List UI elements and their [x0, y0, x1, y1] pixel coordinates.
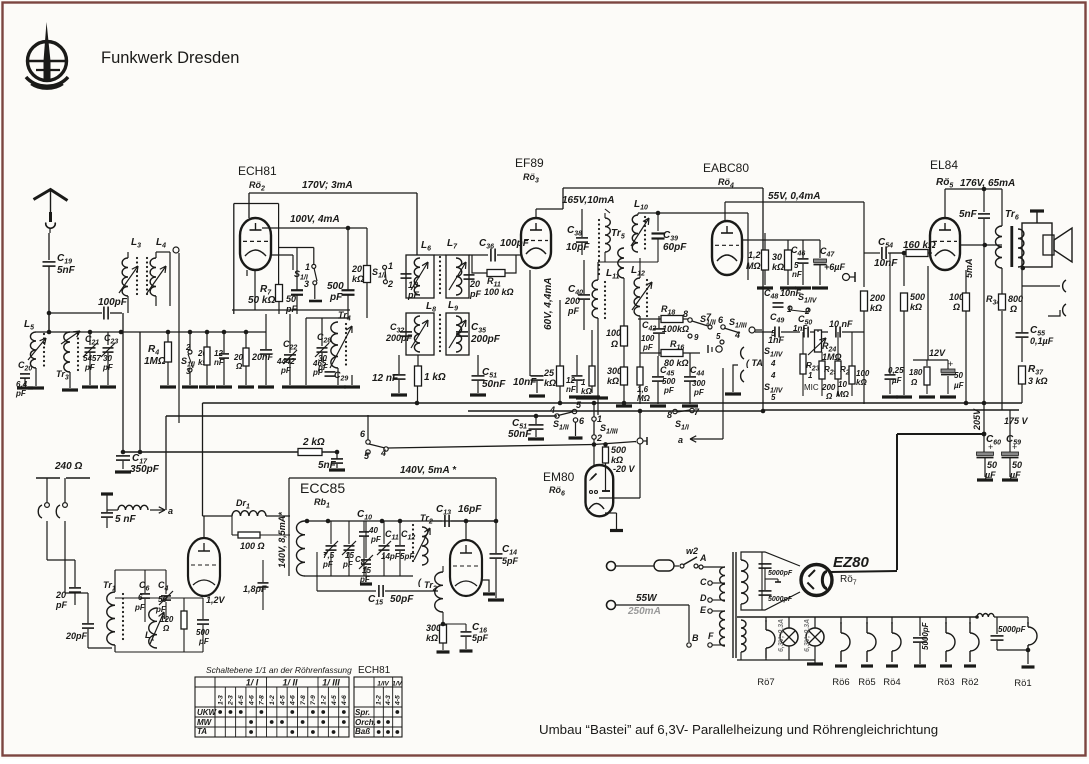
- svg-text:2: 2: [387, 279, 393, 289]
- svg-text:140V, 5mA *: 140V, 5mA *: [400, 465, 457, 476]
- svg-text:1/IV: 1/IV: [377, 681, 389, 688]
- svg-text:1 kΩ: 1 kΩ: [424, 372, 446, 383]
- svg-text:kΩ: kΩ: [426, 633, 438, 643]
- svg-text:7-8: 7-8: [259, 695, 266, 705]
- svg-text:-20 V: -20 V: [613, 464, 636, 474]
- svg-text:Orch.: Orch.: [355, 718, 376, 727]
- svg-text:7,5: 7,5: [323, 551, 335, 560]
- svg-text:300: 300: [607, 366, 622, 376]
- svg-text:10pF: 10pF: [566, 242, 590, 253]
- svg-text:100: 100: [949, 292, 964, 302]
- svg-text:25: 25: [543, 368, 555, 378]
- svg-text:pF: pF: [567, 306, 579, 316]
- svg-text:Rö6: Rö6: [832, 677, 849, 688]
- svg-text:7-8: 7-8: [300, 695, 307, 705]
- svg-text:UKW: UKW: [197, 708, 218, 717]
- svg-text:10 nF: 10 nF: [829, 319, 853, 329]
- svg-text:5000pF: 5000pF: [998, 625, 1027, 634]
- svg-text:EZ80: EZ80: [833, 554, 870, 571]
- svg-text:a: a: [168, 506, 173, 516]
- svg-text:EM80: EM80: [543, 470, 575, 484]
- svg-text:50 kΩ: 50 kΩ: [248, 295, 275, 306]
- svg-text:pF: pF: [370, 535, 382, 544]
- svg-text:nF: nF: [214, 358, 225, 367]
- svg-text:1,6: 1,6: [637, 385, 649, 394]
- svg-text:EF89: EF89: [515, 156, 544, 170]
- svg-text:200pF: 200pF: [385, 333, 413, 343]
- svg-text:4: 4: [770, 371, 776, 380]
- svg-text:12V: 12V: [929, 348, 946, 358]
- svg-text:pF: pF: [342, 560, 354, 569]
- svg-text:6,3V; 0,3A: 6,3V; 0,3A: [778, 619, 785, 652]
- svg-text:10nF: 10nF: [874, 258, 898, 269]
- svg-text:w2: w2: [686, 546, 698, 556]
- svg-text:5 nF: 5 nF: [115, 514, 136, 525]
- svg-text:1MΩ: 1MΩ: [144, 356, 166, 367]
- svg-text:5nF: 5nF: [57, 265, 76, 276]
- svg-text:B: B: [692, 633, 699, 643]
- svg-text:4: 4: [549, 405, 555, 415]
- svg-text:ECH81: ECH81: [358, 665, 391, 676]
- svg-text:Schaltebene 1/1 an der Röhrenf: Schaltebene 1/1 an der Röhrenfassung: [206, 665, 352, 675]
- svg-text:140V, 8,5mA*: 140V, 8,5mA*: [277, 512, 287, 568]
- svg-text:20: 20: [469, 279, 480, 289]
- svg-text:20: 20: [55, 590, 66, 600]
- svg-text:Baß: Baß: [355, 727, 370, 736]
- svg-text:5: 5: [794, 261, 799, 270]
- svg-text:10: 10: [838, 380, 847, 389]
- svg-text:pF: pF: [285, 304, 297, 314]
- svg-text:kΩ: kΩ: [856, 378, 867, 387]
- svg-text:50: 50: [954, 371, 963, 380]
- svg-text:4: 4: [734, 330, 740, 340]
- svg-text:100V, 4mA: 100V, 4mA: [290, 214, 340, 225]
- svg-text:A: A: [699, 553, 707, 563]
- svg-text:7-9: 7-9: [310, 695, 317, 705]
- svg-text:Ω: Ω: [825, 392, 833, 401]
- svg-text:µF: µF: [953, 381, 965, 390]
- svg-text:5nF: 5nF: [959, 209, 978, 220]
- svg-text:250mA: 250mA: [627, 606, 661, 617]
- svg-text:pF: pF: [642, 343, 654, 352]
- svg-text:pF: pF: [198, 637, 210, 646]
- svg-text:Rö7: Rö7: [757, 677, 774, 688]
- svg-text:200: 200: [869, 293, 885, 303]
- svg-text:Spr.: Spr.: [355, 708, 370, 717]
- svg-text:15: 15: [345, 551, 354, 560]
- svg-text:5: 5: [771, 329, 776, 338]
- svg-text:800: 800: [1008, 294, 1023, 304]
- svg-text:4-5: 4-5: [331, 695, 338, 706]
- svg-text:500: 500: [910, 292, 925, 302]
- svg-text:Rö5: Rö5: [858, 677, 875, 688]
- svg-text:F: F: [708, 631, 714, 641]
- svg-text:ECH81: ECH81: [238, 164, 277, 178]
- svg-text:50: 50: [987, 460, 997, 470]
- svg-text:2: 2: [596, 433, 602, 443]
- svg-text:5mA: 5mA: [964, 258, 974, 278]
- svg-text:60V, 4,4mA: 60V, 4,4mA: [543, 278, 554, 330]
- svg-text:pF: pF: [155, 605, 167, 614]
- svg-text:4442: 4442: [276, 357, 295, 366]
- svg-text:pF: pF: [693, 388, 705, 397]
- svg-text:40: 40: [368, 526, 378, 535]
- svg-text:+: +: [988, 442, 993, 452]
- svg-text:5000pF: 5000pF: [768, 570, 793, 577]
- svg-text:165V,10mA: 165V,10mA: [562, 195, 614, 206]
- svg-text:1,2: 1,2: [748, 250, 761, 260]
- svg-text:kΩ: kΩ: [352, 274, 364, 284]
- svg-text:100kΩ: 100kΩ: [662, 324, 689, 334]
- svg-text:4-6: 4-6: [290, 695, 297, 706]
- svg-text:5: 5: [716, 332, 721, 341]
- svg-text:ECC85: ECC85: [300, 480, 345, 496]
- svg-text:1,2V: 1,2V: [206, 595, 226, 605]
- svg-text:4: 4: [770, 359, 776, 368]
- svg-text:Ω: Ω: [610, 339, 618, 349]
- svg-text:kΩ: kΩ: [607, 376, 619, 386]
- svg-text:500: 500: [662, 377, 676, 386]
- svg-text:kΩ: kΩ: [910, 302, 922, 312]
- svg-text:5: 5: [771, 393, 776, 402]
- svg-text:pF: pF: [407, 290, 419, 300]
- svg-text:1/V: 1/V: [392, 681, 402, 688]
- svg-text:176V, 65mA: 176V, 65mA: [960, 178, 1015, 189]
- svg-text:5pF: 5pF: [472, 633, 489, 643]
- svg-text:pF: pF: [15, 389, 27, 398]
- svg-text:EABC80: EABC80: [703, 161, 749, 175]
- svg-text:175 V: 175 V: [1004, 416, 1029, 426]
- svg-text:Rö3: Rö3: [937, 677, 954, 688]
- svg-text:10: 10: [408, 280, 418, 290]
- svg-text:9: 9: [694, 333, 699, 342]
- svg-text:+6µF: +6µF: [824, 262, 845, 272]
- svg-text:4-5: 4-5: [394, 695, 401, 706]
- svg-text:+: +: [948, 359, 953, 369]
- svg-text:205V: 205V: [972, 408, 982, 431]
- svg-text:50pF: 50pF: [390, 594, 414, 605]
- svg-text:E: E: [700, 605, 707, 615]
- svg-text:240 Ω: 240 Ω: [54, 461, 82, 472]
- svg-text:50nF: 50nF: [482, 379, 506, 390]
- svg-text:1: 1: [581, 378, 586, 387]
- svg-text:8: 8: [667, 410, 672, 420]
- svg-text:1: 1: [305, 262, 310, 272]
- svg-text:2-3: 2-3: [228, 695, 235, 706]
- svg-text:+: +: [1012, 442, 1017, 452]
- svg-text:15: 15: [362, 566, 371, 575]
- svg-text:5pF: 5pF: [502, 556, 519, 566]
- svg-text:3: 3: [304, 279, 309, 289]
- svg-text:1nF: 1nF: [793, 324, 808, 333]
- svg-text:80 kΩ: 80 kΩ: [664, 358, 689, 368]
- svg-text:D: D: [700, 593, 707, 603]
- svg-text:20: 20: [351, 264, 362, 274]
- svg-text:kΩ: kΩ: [581, 387, 592, 396]
- svg-text:6,3V; 0,3A: 6,3V; 0,3A: [804, 619, 811, 652]
- svg-text:nF: nF: [566, 385, 577, 394]
- svg-text:Ω: Ω: [235, 362, 243, 371]
- svg-text:0,1µF: 0,1µF: [1030, 336, 1054, 346]
- svg-text:1/ II: 1/ II: [282, 678, 298, 688]
- svg-text:Rö1: Rö1: [1014, 678, 1031, 689]
- svg-text:50: 50: [1012, 460, 1022, 470]
- svg-text:kΩ: kΩ: [544, 378, 556, 388]
- svg-text:1-2: 1-2: [269, 695, 276, 705]
- svg-text:pF: pF: [329, 292, 343, 303]
- svg-text:20pF: 20pF: [65, 631, 88, 641]
- svg-text:100: 100: [606, 328, 621, 338]
- svg-text:( TA: ( TA: [746, 358, 763, 368]
- svg-text:1-3: 1-3: [217, 695, 224, 705]
- svg-text:a: a: [678, 435, 683, 445]
- svg-text:1: 1: [388, 261, 393, 271]
- svg-text:4-3: 4-3: [385, 695, 392, 706]
- svg-text:Ω: Ω: [162, 624, 170, 633]
- svg-text:kΩ: kΩ: [870, 303, 882, 313]
- svg-text:4: 4: [380, 448, 386, 458]
- svg-text:100pF: 100pF: [500, 238, 530, 249]
- svg-text:200: 200: [821, 383, 836, 392]
- svg-text:TA: TA: [197, 727, 207, 736]
- svg-text:3 kΩ: 3 kΩ: [1028, 376, 1048, 386]
- svg-text:µF: µF: [891, 376, 903, 385]
- svg-text:Ω: Ω: [952, 302, 960, 312]
- svg-text:pF: pF: [322, 560, 334, 569]
- svg-text:350pF: 350pF: [130, 464, 160, 475]
- svg-text:MIC: MIC: [804, 383, 819, 392]
- svg-text:MΩ: MΩ: [637, 394, 651, 403]
- svg-text:120: 120: [160, 615, 174, 624]
- svg-text:kΩ: kΩ: [772, 262, 784, 272]
- svg-text:1/ III: 1/ III: [322, 678, 340, 688]
- svg-text:1/ I: 1/ I: [246, 678, 259, 688]
- svg-text:1-2: 1-2: [320, 695, 327, 705]
- svg-text:55V, 0,4mA: 55V, 0,4mA: [768, 191, 820, 202]
- svg-text:100 Ω: 100 Ω: [240, 541, 265, 551]
- svg-text:10nF: 10nF: [513, 377, 537, 388]
- svg-text:2 kΩ: 2 kΩ: [302, 437, 325, 448]
- svg-text:180: 180: [909, 368, 923, 377]
- svg-text:MW: MW: [197, 718, 213, 727]
- svg-text:Ω: Ω: [1009, 304, 1017, 314]
- svg-text:5000pF: 5000pF: [768, 596, 793, 603]
- svg-text:60pF: 60pF: [663, 242, 687, 253]
- svg-text:MΩ: MΩ: [746, 261, 761, 271]
- svg-text:30: 30: [772, 252, 782, 262]
- svg-text:Umbau “Bastei” auf 6,3V- Paral: Umbau “Bastei” auf 6,3V- Parallelheizung…: [539, 722, 938, 737]
- svg-text:4-6: 4-6: [341, 695, 348, 706]
- svg-text:4-5: 4-5: [279, 695, 286, 706]
- svg-text:200: 200: [564, 296, 580, 306]
- svg-text:100: 100: [641, 334, 655, 343]
- svg-text:5457: 5457: [83, 354, 101, 363]
- svg-text:100pF: 100pF: [98, 297, 128, 308]
- svg-text:100: 100: [856, 369, 870, 378]
- svg-text:170V; 3mA: 170V; 3mA: [302, 180, 353, 191]
- svg-text:pF: pF: [469, 289, 481, 299]
- svg-text:500: 500: [611, 445, 626, 455]
- svg-text:C: C: [700, 577, 707, 587]
- svg-text:300: 300: [426, 623, 441, 633]
- svg-text:pF: pF: [55, 600, 67, 610]
- svg-text:pF: pF: [663, 386, 675, 395]
- svg-text:EL84: EL84: [930, 158, 958, 172]
- svg-text:5000pF: 5000pF: [921, 621, 930, 650]
- svg-text:Rö4: Rö4: [883, 677, 900, 688]
- svg-text:16pF: 16pF: [458, 504, 482, 515]
- svg-text:1: 1: [808, 371, 813, 380]
- svg-text:465: 465: [312, 359, 327, 368]
- svg-text:pF: pF: [134, 603, 146, 612]
- svg-text:pF: pF: [312, 368, 324, 377]
- svg-text:8: 8: [683, 309, 688, 319]
- svg-text:4-5: 4-5: [238, 695, 245, 706]
- svg-text:100 kΩ: 100 kΩ: [484, 287, 514, 297]
- svg-text:55W: 55W: [636, 593, 658, 604]
- svg-text:4-6: 4-6: [248, 695, 255, 706]
- svg-text:200pF: 200pF: [470, 334, 501, 345]
- svg-text:1-2: 1-2: [376, 695, 383, 705]
- svg-text:Rö2: Rö2: [961, 677, 978, 688]
- svg-text:Funkwerk Dresden: Funkwerk Dresden: [101, 49, 239, 67]
- svg-text:50: 50: [286, 294, 296, 304]
- svg-text:Ω: Ω: [910, 378, 918, 387]
- svg-text:nF: nF: [792, 270, 803, 279]
- svg-text:300: 300: [692, 379, 706, 388]
